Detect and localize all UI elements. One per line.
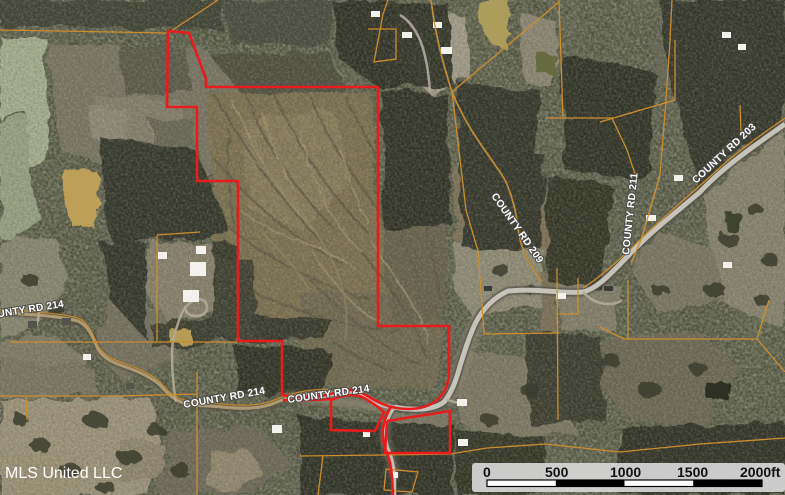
svg-text:2000ft: 2000ft	[740, 464, 781, 480]
svg-text:500: 500	[545, 464, 569, 480]
svg-text:1000: 1000	[610, 464, 641, 480]
svg-text:0: 0	[483, 464, 491, 480]
svg-text:MLS United LLC: MLS United LLC	[5, 465, 122, 482]
svg-text:1500: 1500	[677, 464, 708, 480]
